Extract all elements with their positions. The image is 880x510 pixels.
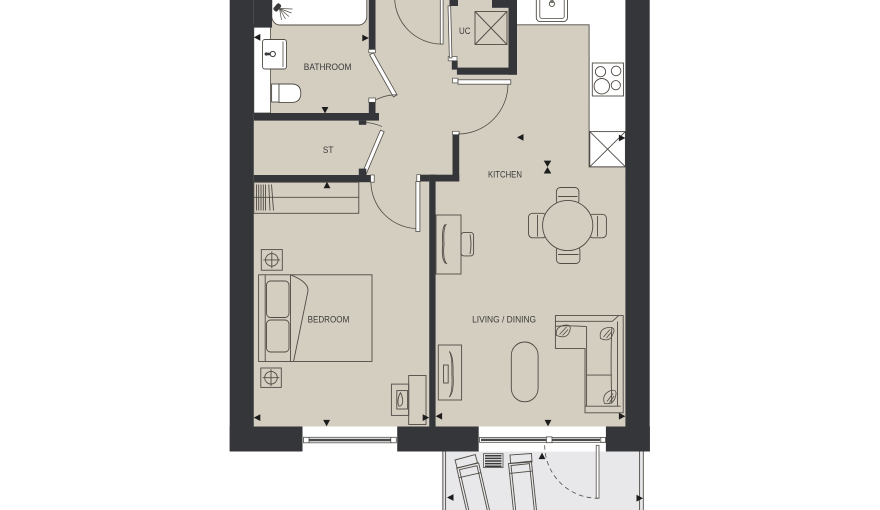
svg-text:UC: UC: [459, 26, 471, 37]
svg-text:LIVING / DINING: LIVING / DINING: [472, 315, 536, 326]
svg-text:BATHROOM: BATHROOM: [304, 62, 352, 73]
svg-text:ST: ST: [323, 145, 334, 156]
svg-text:BEDROOM: BEDROOM: [308, 315, 350, 326]
svg-text:KITCHEN: KITCHEN: [488, 170, 522, 181]
